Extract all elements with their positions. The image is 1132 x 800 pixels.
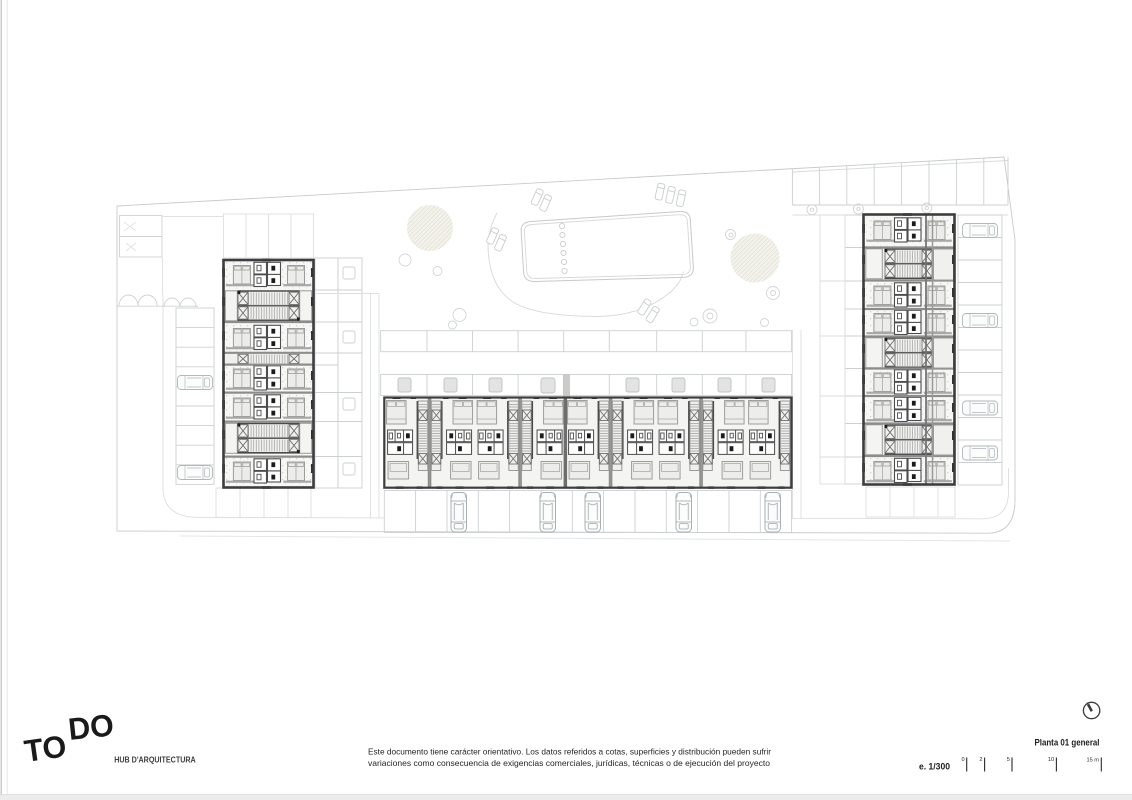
svg-text:0: 0: [962, 757, 965, 763]
svg-text:15 m: 15 m: [1087, 758, 1100, 764]
svg-text:Este documento tiene carácter: Este documento tiene carácter orientativ…: [368, 747, 771, 757]
svg-text:variaciones como consecuencia: variaciones como consecuencia de exigenc…: [368, 758, 770, 768]
svg-text:10: 10: [1048, 757, 1054, 763]
svg-text:5: 5: [1007, 757, 1010, 763]
svg-text:e. 1/300: e. 1/300: [919, 762, 950, 772]
svg-text:HUB D'ARQUITECTURA: HUB D'ARQUITECTURA: [114, 755, 196, 765]
svg-text:Planta 01 general: Planta 01 general: [1035, 737, 1100, 748]
svg-text:2: 2: [979, 757, 982, 763]
svg-text:TO: TO: [22, 728, 68, 769]
svg-text:DO: DO: [67, 707, 116, 747]
